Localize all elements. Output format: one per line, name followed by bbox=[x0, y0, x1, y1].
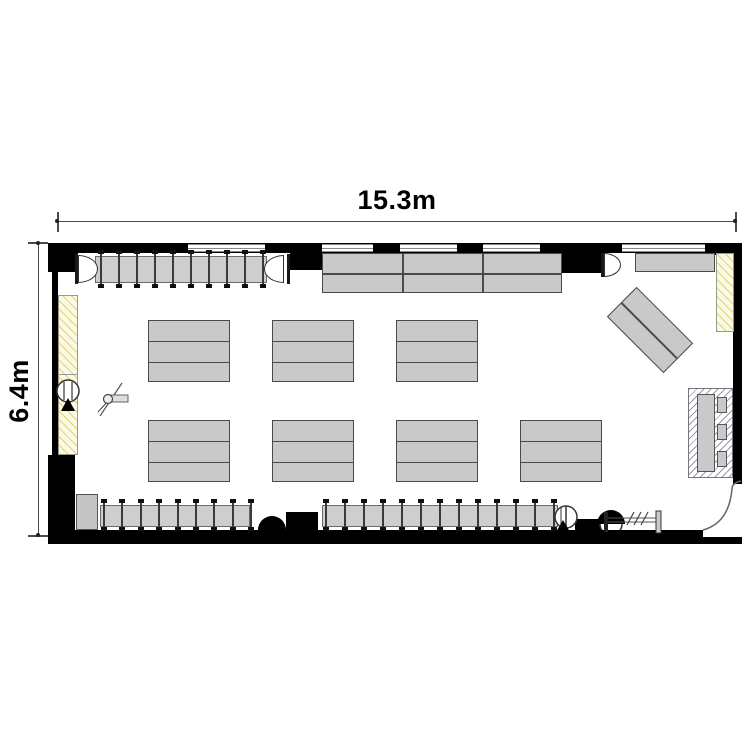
rack-post bbox=[401, 500, 403, 530]
floor-plan-canvas: 15.3m 6.4m bbox=[0, 0, 750, 750]
rack-post bbox=[158, 500, 160, 530]
rack-post bbox=[244, 251, 246, 287]
table-cluster bbox=[272, 420, 354, 482]
table-divider bbox=[521, 441, 601, 443]
rack-post bbox=[477, 500, 479, 530]
equipment-cell bbox=[717, 451, 727, 467]
table-divider bbox=[397, 362, 477, 364]
rack-post bbox=[121, 500, 123, 530]
table-divider bbox=[273, 441, 353, 443]
rack-post bbox=[213, 500, 215, 530]
table-divider bbox=[521, 462, 601, 464]
table-cluster bbox=[148, 420, 230, 482]
table-cluster bbox=[520, 420, 602, 482]
wardrobe-hatch-panel bbox=[58, 295, 78, 455]
table-cluster bbox=[148, 320, 230, 382]
rack-post bbox=[420, 500, 422, 530]
right-wall bbox=[733, 243, 742, 484]
hanger-rack-top-panel bbox=[95, 256, 267, 283]
rack-post bbox=[195, 500, 197, 530]
wall-pier bbox=[48, 455, 75, 544]
rack-post bbox=[100, 251, 102, 287]
wall-pier bbox=[48, 243, 78, 272]
equipment-unit bbox=[697, 394, 715, 472]
table-cluster bbox=[396, 420, 478, 482]
rack-post bbox=[515, 500, 517, 530]
wardrobe-hatch-panel bbox=[716, 253, 734, 332]
rack-post bbox=[382, 500, 384, 530]
wall-pier bbox=[575, 519, 605, 531]
equipment-cell bbox=[717, 397, 727, 413]
rack-post bbox=[344, 500, 346, 530]
wall-pier bbox=[286, 512, 318, 530]
table-divider bbox=[397, 341, 477, 343]
table-divider bbox=[149, 441, 229, 443]
table-divider bbox=[397, 462, 477, 464]
table-divider bbox=[149, 362, 229, 364]
rack-post bbox=[496, 500, 498, 530]
table-cluster bbox=[272, 320, 354, 382]
bottom-wall bbox=[48, 530, 703, 544]
angled-table bbox=[607, 287, 693, 373]
window bbox=[483, 244, 540, 252]
rack-endcap-bar bbox=[287, 254, 290, 284]
rack-endcap-bar bbox=[601, 253, 604, 277]
rack-post bbox=[118, 251, 120, 287]
table-divider bbox=[149, 341, 229, 343]
rack-post bbox=[136, 251, 138, 287]
wall-pier bbox=[560, 243, 604, 273]
rack-post bbox=[172, 251, 174, 287]
rack-post bbox=[208, 251, 210, 287]
rack-post bbox=[325, 500, 327, 530]
rack-post bbox=[140, 500, 142, 530]
rack-post bbox=[250, 500, 252, 530]
rack-post bbox=[190, 251, 192, 287]
rack-post bbox=[103, 500, 105, 530]
rack-endcap-bar bbox=[75, 254, 78, 284]
panel-divider bbox=[59, 374, 77, 375]
wall-pier bbox=[290, 243, 323, 270]
equipment-cell bbox=[717, 424, 727, 440]
window bbox=[400, 244, 457, 252]
locker bbox=[76, 494, 98, 530]
rack-endcap bbox=[604, 253, 621, 277]
table-divider bbox=[273, 341, 353, 343]
table-divider bbox=[482, 254, 484, 292]
bottom-wall-right bbox=[703, 537, 742, 544]
table-divider bbox=[273, 462, 353, 464]
rack-post bbox=[534, 500, 536, 530]
work-counter bbox=[635, 253, 715, 272]
table-divider bbox=[149, 462, 229, 464]
rack-post bbox=[363, 500, 365, 530]
table-divider bbox=[402, 254, 404, 292]
rack-post bbox=[232, 500, 234, 530]
table-divider bbox=[621, 303, 677, 359]
table-divider bbox=[323, 273, 561, 275]
table-divider bbox=[273, 362, 353, 364]
rack-post bbox=[226, 251, 228, 287]
table-block-top bbox=[322, 253, 562, 293]
rack-endcap bbox=[264, 255, 284, 283]
rack-end-dome bbox=[258, 516, 286, 530]
rack-post bbox=[154, 251, 156, 287]
rack-post bbox=[177, 500, 179, 530]
rack-post bbox=[439, 500, 441, 530]
room-plan bbox=[0, 0, 750, 750]
rack-post bbox=[553, 500, 555, 530]
table-divider bbox=[397, 441, 477, 443]
rack-post bbox=[458, 500, 460, 530]
window bbox=[322, 244, 373, 252]
window bbox=[622, 244, 705, 252]
table-cluster bbox=[396, 320, 478, 382]
